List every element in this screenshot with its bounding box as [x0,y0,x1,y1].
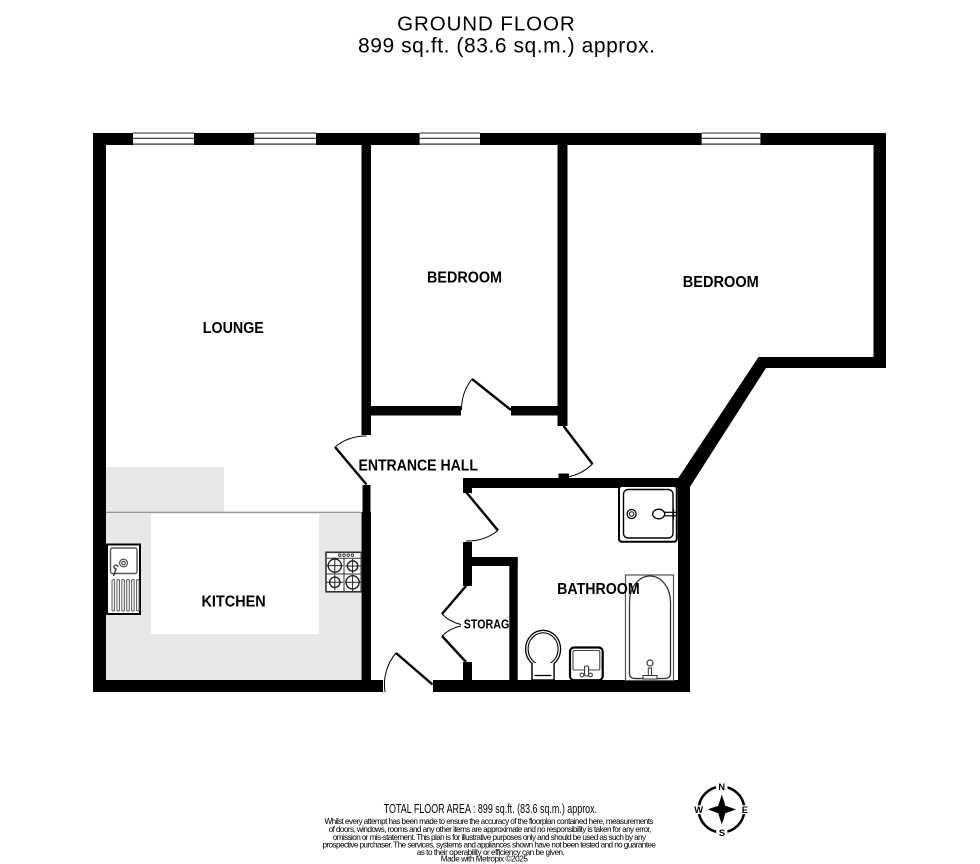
svg-text:BEDROOM: BEDROOM [427,270,502,287]
svg-text:N: N [718,782,725,792]
svg-text:E: E [742,805,748,815]
svg-text:Made with Metropix ©2025: Made with Metropix ©2025 [441,855,529,864]
svg-text:BEDROOM: BEDROOM [683,274,759,291]
svg-text:ENTRANCE HALL: ENTRANCE HALL [358,458,478,475]
svg-text:BATHROOM: BATHROOM [557,581,640,598]
svg-text:LOUNGE: LOUNGE [203,320,264,337]
svg-text:STORAGE: STORAGE [464,617,517,631]
svg-text:GROUND FLOOR: GROUND FLOOR [397,12,575,35]
svg-text:KITCHEN: KITCHEN [201,594,265,611]
svg-text:899 sq.ft. (83.6 sq.m.) approx: 899 sq.ft. (83.6 sq.m.) approx. [358,34,655,57]
svg-text:TOTAL FLOOR AREA : 899 sq.ft.: TOTAL FLOOR AREA : 899 sq.ft. (83.6 sq.m… [384,802,597,816]
svg-text:W: W [694,805,703,815]
svg-text:S: S [719,828,725,838]
